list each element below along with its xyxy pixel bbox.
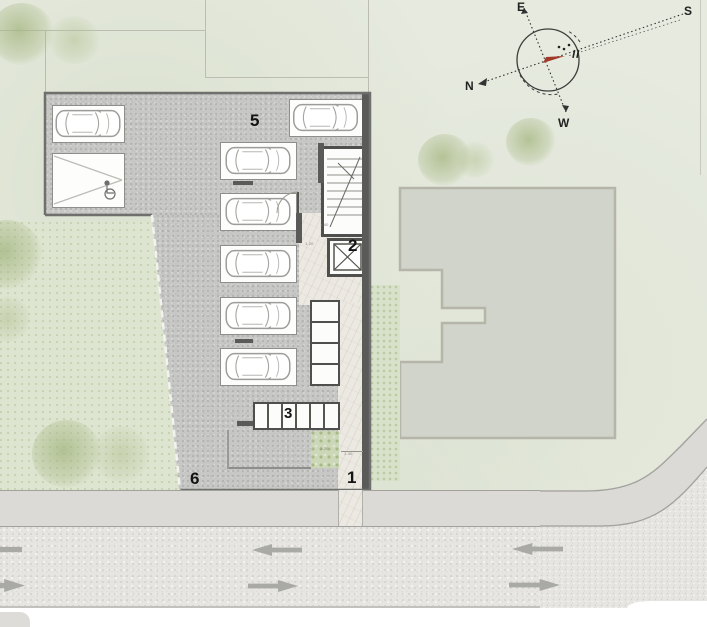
compass-north-label: N (465, 80, 474, 92)
tree-icon (48, 16, 100, 64)
zone-label-entrance: 1 (347, 469, 356, 486)
tree-icon (456, 142, 494, 178)
property-line (205, 0, 206, 77)
property-line (368, 0, 369, 93)
sidewalk (0, 490, 586, 527)
street-corner (540, 400, 707, 627)
zone-label-bike: 3 (284, 406, 292, 421)
dimension-text: 1.40 (320, 223, 329, 227)
lot-outline (40, 88, 376, 500)
dimension-text: 1.40 (344, 452, 353, 456)
compass-south-label: S (684, 5, 692, 17)
compass-west-label: W (558, 117, 569, 129)
property-line (205, 77, 368, 78)
zone-label-core: 2 (348, 237, 357, 254)
curb-corner (0, 612, 30, 627)
dimension-text: 2.20 (320, 447, 329, 451)
site-plan: 1.40 1.20 2.20 1.40 (0, 0, 707, 627)
compass-rose (440, 0, 707, 135)
dimension-tick (341, 451, 363, 452)
zone-label-ramp: 5 (250, 112, 259, 129)
entrance-walkway (338, 490, 363, 526)
dimension-text: 1.20 (305, 242, 314, 246)
zone-label-lot: 6 (190, 470, 199, 487)
compass-east-label: E (517, 1, 525, 13)
